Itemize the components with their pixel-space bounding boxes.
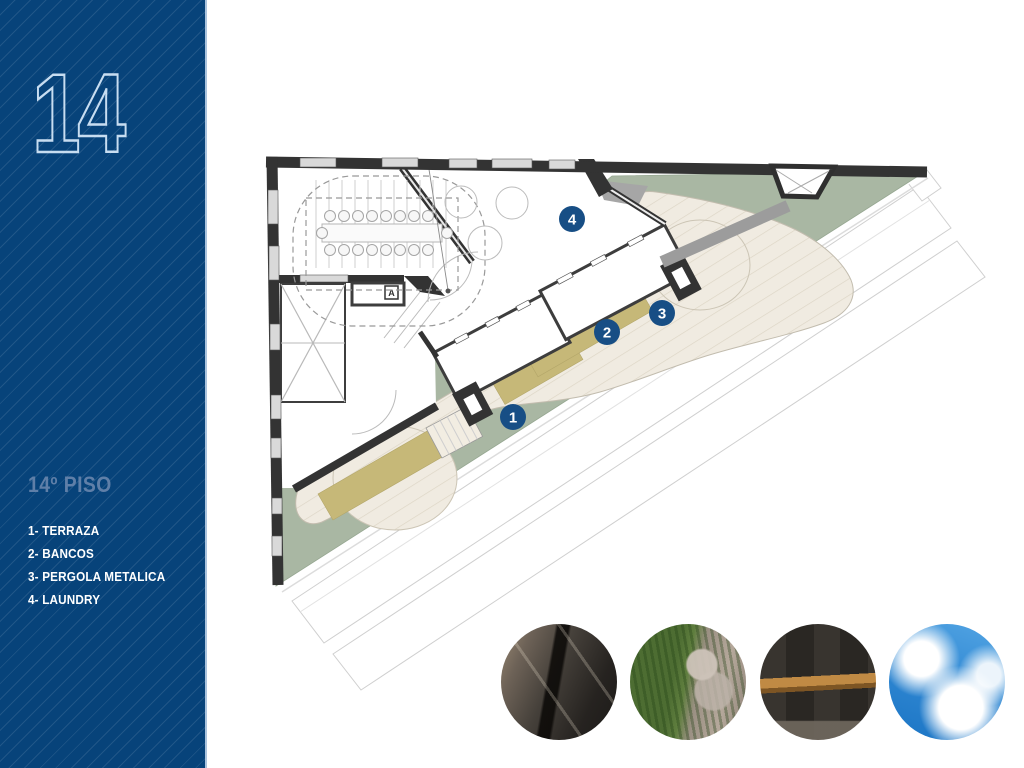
legend-item-terraza: 1- TERRAZA	[28, 519, 165, 542]
photo-pergola-metal-structure	[501, 624, 617, 740]
plan-marker-4: 4	[559, 206, 585, 232]
svg-text:14: 14	[32, 52, 126, 170]
legend-item-laundry: 4- LAUNDRY	[28, 588, 165, 611]
photo-sky-clouds	[889, 624, 1005, 740]
floor-big-number: 14	[8, 50, 193, 175]
svg-text:2: 2	[603, 325, 611, 342]
svg-text:1: 1	[509, 410, 517, 427]
plan-marker-3: 3	[649, 300, 675, 326]
svg-text:4: 4	[568, 212, 577, 229]
legend-item-pergola-metalica: 3- PERGOLA METALICA	[28, 565, 165, 588]
plan-marker-1: 1	[500, 404, 526, 430]
svg-text:3: 3	[658, 306, 666, 323]
legend: 1- TERRAZA 2- BANCOS 3- PERGOLA METALICA…	[28, 519, 181, 611]
photo-grass-and-gravel	[630, 624, 746, 740]
plan-marker-2: 2	[594, 319, 620, 345]
legend-item-bancos: 2- BANCOS	[28, 542, 165, 565]
slide: A	[0, 0, 1024, 768]
floor-title: 14º PISO	[28, 472, 112, 498]
photo-wood-bench	[760, 624, 876, 740]
sidebar: 14 14º PISO 1- TERRAZA 2- BANCOS 3- PERG…	[0, 0, 207, 768]
